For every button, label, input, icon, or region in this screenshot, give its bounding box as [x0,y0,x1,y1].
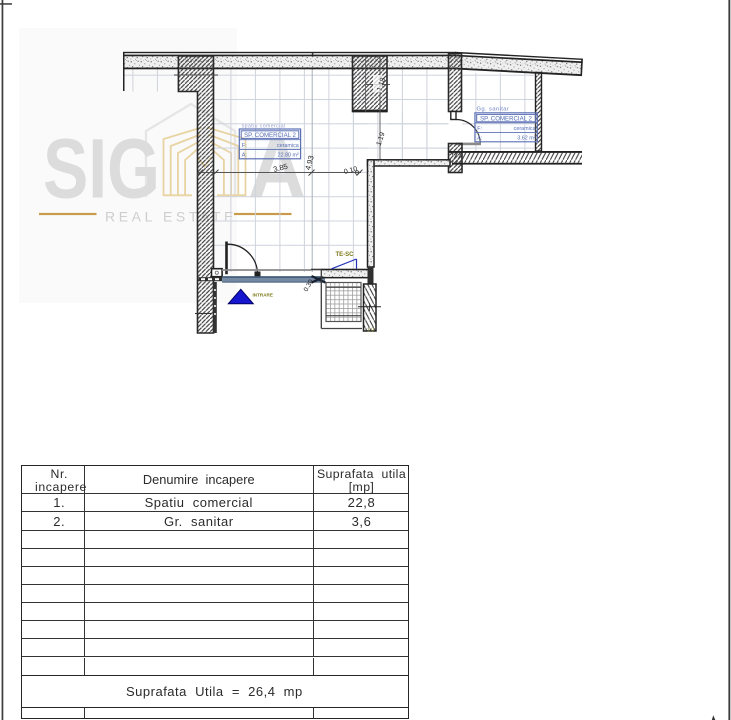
svg-text:22.80 m²: 22.80 m² [278,153,299,159]
svg-text:1.0: 1.0 [367,328,374,334]
svg-text:SP. COMERCIAL 2: SP. COMERCIAL 2 [480,115,532,122]
svg-text:F:: F: [477,126,482,132]
svg-text:ceramica: ceramica [514,126,536,132]
svg-text:SP. COMERCIAL 2: SP. COMERCIAL 2 [244,132,296,139]
svg-text:Gg. sanitar: Gg. sanitar [477,107,510,113]
svg-text:3.62 m²: 3.62 m² [517,136,535,142]
svg-text:TE-SC: TE-SC [336,252,355,258]
svg-text:ceramica: ceramica [277,143,299,149]
svg-text:A:: A: [242,153,247,159]
svg-text:A:: A: [477,136,482,142]
svg-text:F:: F: [242,143,247,149]
svg-text:INTRARE: INTRARE [253,293,273,298]
